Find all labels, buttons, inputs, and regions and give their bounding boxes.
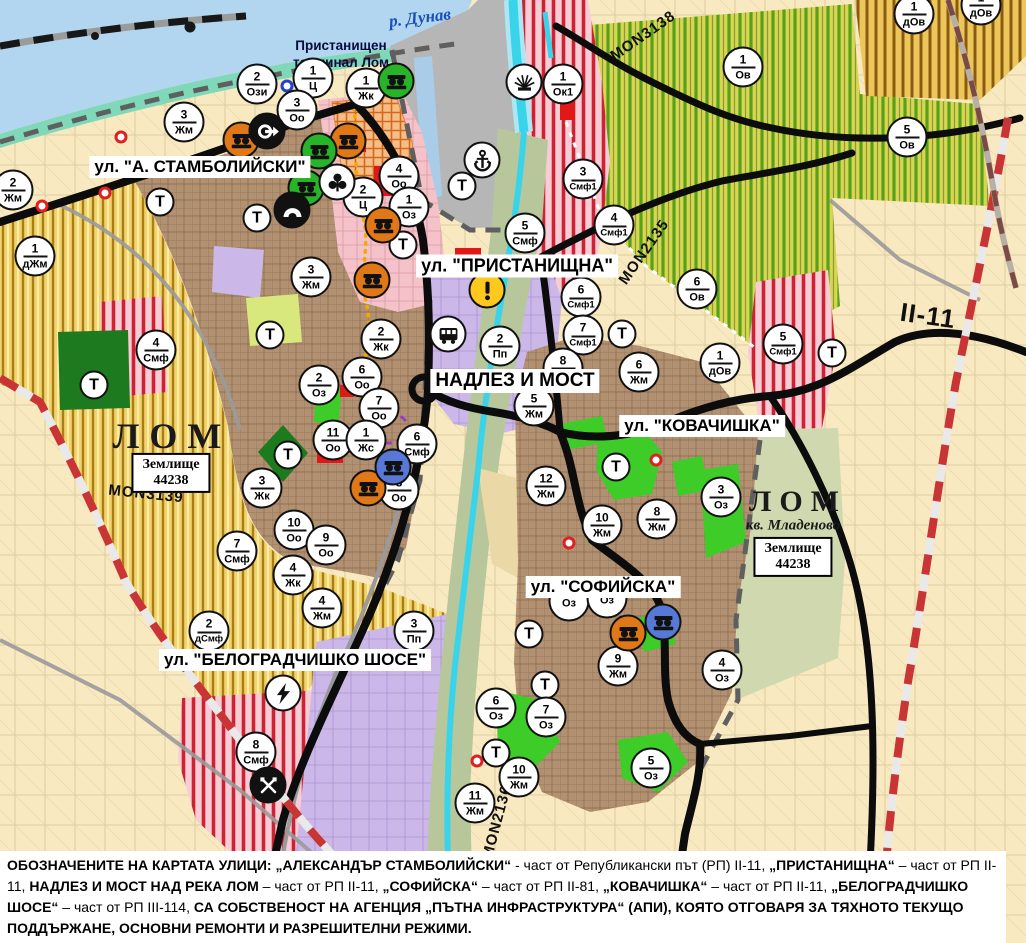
- t-marker: Т: [515, 620, 544, 649]
- zone-marker-number: 3: [580, 166, 587, 178]
- t-marker: Т: [602, 453, 631, 482]
- zone-marker: 3Смф1: [563, 159, 604, 200]
- monument-blue-icon: [645, 604, 682, 641]
- red-ring-dot: [99, 187, 112, 200]
- zone-marker-code: Жм: [313, 611, 331, 622]
- zone-marker: 3Жм: [164, 102, 205, 143]
- zone-marker-code: Жм: [630, 375, 648, 386]
- zone-marker: 10Жм: [582, 505, 623, 546]
- zone-marker-code: Жм: [175, 125, 193, 136]
- zone-marker-code: дСмф: [195, 635, 223, 645]
- zone-marker-number: 7: [234, 537, 241, 549]
- zone-marker-code: Смф1: [567, 301, 594, 311]
- zone-marker-number: 1: [911, 0, 918, 12]
- zone-marker-code: Ов: [899, 140, 914, 151]
- zone-marker-number: 1: [310, 64, 317, 76]
- zone-marker-code: Оз: [714, 500, 728, 511]
- zone-marker-number: 7: [543, 703, 550, 715]
- zone-marker-divider: [405, 444, 429, 446]
- zone-marker-divider: [710, 670, 734, 672]
- zone-marker-code: Оо: [354, 380, 369, 391]
- note-segment: – част от РП II-81,: [478, 878, 603, 894]
- zone-marker-code: Оо: [286, 533, 301, 544]
- zone-marker-divider: [387, 490, 411, 492]
- zone-marker-code: Жм: [4, 193, 22, 204]
- zone-marker: 7Оз: [526, 697, 567, 738]
- zone-marker: 4Смф: [136, 330, 177, 371]
- zone-marker-number: 6: [414, 430, 421, 442]
- zone-marker-divider: [314, 545, 338, 547]
- zone-marker-code: Оо: [318, 548, 333, 559]
- zone-marker-code: Жм: [525, 409, 543, 420]
- zone-marker-number: 1: [363, 426, 370, 438]
- zone-marker: 6Смф1: [561, 277, 602, 318]
- zone-marker-code: Жк: [373, 342, 388, 353]
- zone-marker-number: 8: [253, 738, 260, 750]
- zone-marker-code: Оз: [312, 388, 326, 399]
- zone-marker-code: дОв: [903, 17, 925, 28]
- land-registry-name: Землище: [764, 541, 821, 557]
- zone-marker-code: Смф1: [569, 339, 596, 349]
- zone-marker-number: 1: [560, 70, 567, 82]
- street-label: ул. "СОФИЙСКА": [526, 576, 681, 598]
- zone-marker-divider: [301, 78, 325, 80]
- zone-marker: 5Ов: [887, 117, 928, 158]
- zone-marker-code: Оо: [391, 493, 406, 504]
- zone-marker-number: 10: [287, 516, 300, 528]
- zone-marker-number: 1: [717, 349, 724, 361]
- zone-marker-code: Смф1: [600, 229, 627, 239]
- zone-marker: 1Ок1: [543, 64, 584, 105]
- bus-station-icon: [430, 316, 467, 353]
- zone-marker-number: 3: [259, 474, 266, 486]
- zone-marker-number: 9: [615, 652, 622, 664]
- zone-marker-divider: [172, 122, 196, 124]
- street-label: НАДЛЕЗ И МОСТ: [430, 369, 599, 393]
- trefoil-icon: [319, 164, 356, 201]
- zone-marker-divider: [397, 207, 421, 209]
- zone-marker-divider: [225, 551, 249, 553]
- zone-marker: 1дЖм: [15, 236, 56, 277]
- zone-marker-code: Жк: [285, 578, 300, 589]
- zone-marker-code: Жс: [358, 443, 374, 454]
- zone-marker-divider: [310, 608, 334, 610]
- zone-marker-number: 7: [376, 394, 383, 406]
- zone-marker-number: 2: [360, 183, 367, 195]
- zone-marker-number: 6: [359, 363, 366, 375]
- zone-marker: 10Жм: [499, 757, 540, 798]
- street-label: ул. "БЕЛОГРАДЧИШКО ШОСЕ": [159, 649, 431, 671]
- zone-marker: 2Пп: [480, 326, 521, 367]
- zone-marker-code: Жм: [609, 669, 627, 680]
- zone-marker-number: 12: [539, 472, 552, 484]
- zone-marker-number: 6: [578, 284, 585, 296]
- zone-marker-divider: [627, 372, 651, 374]
- zone-marker-code: Смф1: [569, 183, 596, 193]
- zone-marker: 2дСмф: [189, 611, 230, 652]
- zone-marker: 5Смф1: [763, 324, 804, 365]
- zone-marker-number: 10: [512, 763, 525, 775]
- zone-marker: 6Ов: [677, 269, 718, 310]
- zone-marker-number: 9: [323, 531, 330, 543]
- zone-marker-divider: [281, 575, 305, 577]
- t-marker: Т: [818, 339, 847, 368]
- t-marker: Т: [146, 188, 175, 217]
- zone-marker-code: Оз: [489, 711, 503, 722]
- power-lightning-icon: [265, 675, 302, 712]
- zone-marker-code: Жм: [593, 528, 611, 539]
- zone-marker-divider: [244, 752, 268, 754]
- zone-marker-divider: [534, 486, 558, 488]
- zone-marker-code: Жк: [254, 491, 269, 502]
- zone-marker: 2Ози: [237, 64, 278, 105]
- zone-marker: 7Смф: [217, 531, 258, 572]
- city-name-label: ЛОМ: [113, 415, 232, 457]
- zone-marker-divider: [144, 350, 168, 352]
- zone-marker-divider: [387, 176, 411, 178]
- zone-marker-code: Жм: [302, 280, 320, 291]
- zone-marker-divider: [285, 110, 309, 112]
- zone-marker-divider: [685, 289, 709, 291]
- zone-marker-code: Оз: [644, 771, 658, 782]
- zone-marker-number: 3: [181, 108, 188, 120]
- zone-marker-code: Пп: [407, 634, 422, 645]
- zone-marker-code: Оо: [325, 443, 340, 454]
- gate-arrow-icon: [249, 113, 286, 150]
- zone-marker: 12Жм: [526, 466, 567, 507]
- zone-marker: 2Жк: [361, 319, 402, 360]
- t-marker: Т: [274, 441, 303, 470]
- t-marker: Т: [531, 671, 560, 700]
- red-ring-dot: [563, 537, 576, 550]
- zone-marker-number: 1: [363, 74, 370, 86]
- zone-marker-number: 3: [411, 617, 418, 629]
- street-label: ул. "А. СТАМБОЛИЙСКИ": [89, 156, 310, 178]
- monument-green-icon: [378, 63, 415, 100]
- zone-marker-number: 5: [648, 754, 655, 766]
- zone-marker-number: 8: [560, 354, 567, 366]
- t-marker: Т: [243, 204, 272, 233]
- land-registry-box: Землище44238: [753, 537, 832, 577]
- zone-marker: 8Жм: [637, 499, 678, 540]
- red-ring-dot: [650, 454, 663, 467]
- zone-marker-code: Оз: [562, 598, 576, 609]
- zone-marker-divider: [321, 440, 345, 442]
- zone-marker: 4Жм: [302, 588, 343, 629]
- zone-marker-divider: [299, 277, 323, 279]
- zone-marker-number: 8: [654, 505, 661, 517]
- zone-marker-number: 3: [718, 483, 725, 495]
- zone-marker-number: 4: [290, 561, 297, 573]
- zone-marker-code: Жм: [648, 522, 666, 533]
- zoning-map-canvas[interactable]: р. Дунав Пристанищен терминал Лом кв. Мл…: [0, 0, 1026, 943]
- zone-marker-number: 4: [396, 162, 403, 174]
- zone-marker: 1дОв: [700, 343, 741, 384]
- zone-marker-code: Оз: [539, 720, 553, 731]
- zone-marker-code: Ок1: [553, 87, 573, 98]
- zone-marker: 4Смф1: [594, 205, 635, 246]
- zone-marker-number: 5: [522, 219, 529, 231]
- note-segment: – част от РП II-11,: [707, 878, 831, 894]
- crane-fan-icon: [506, 64, 543, 101]
- zone-marker-code: дЖм: [22, 259, 47, 270]
- zone-marker: 5Смф: [505, 213, 546, 254]
- zone-marker-number: 4: [319, 594, 326, 606]
- zone-marker-code: дОв: [970, 8, 992, 19]
- zone-marker: 4Жк: [273, 555, 314, 596]
- zone-marker-divider: [522, 406, 546, 408]
- red-ring-dot: [115, 131, 128, 144]
- zone-marker-divider: [351, 197, 375, 199]
- zone-marker-code: Оз: [402, 210, 416, 221]
- zone-marker: 1Ов: [723, 47, 764, 88]
- red-ring-dot: [36, 200, 49, 213]
- note-segment: „СОФИЙСКА“: [383, 878, 479, 894]
- zone-marker-code: Ов: [735, 70, 750, 81]
- zone-marker: 3Пп: [394, 611, 435, 652]
- zone-marker-code: Жм: [510, 780, 528, 791]
- zone-marker: 3Жк: [242, 468, 283, 509]
- zone-marker: 6Оз: [476, 688, 517, 729]
- zone-marker-number: 4: [153, 336, 160, 348]
- zone-marker-number: 2: [206, 618, 213, 630]
- street-label: ул. "ПРИСТАНИЩНА": [416, 255, 618, 278]
- zone-marker-divider: [367, 408, 391, 410]
- zone-marker-number: 6: [493, 694, 500, 706]
- zone-marker-divider: [709, 497, 733, 499]
- zone-marker-divider: [1, 190, 25, 192]
- zone-marker-divider: [513, 233, 537, 235]
- zone-marker-divider: [488, 346, 512, 348]
- zone-marker-number: 1: [406, 193, 413, 205]
- zone-marker: 5Оз: [631, 748, 672, 789]
- zone-marker-divider: [282, 530, 306, 532]
- land-registry-box: Землище44238: [131, 453, 210, 493]
- zone-marker: 11Жм: [455, 783, 496, 824]
- land-registry-name: Землище: [142, 457, 199, 473]
- land-registry-number: 44238: [142, 473, 199, 489]
- zone-marker-code: Оо: [289, 113, 304, 124]
- zone-marker-number: 3: [294, 96, 301, 108]
- zone-marker-number: 2: [497, 332, 504, 344]
- note-segment: НАДЛЕЗ И МОСТ НАД РЕКА ЛОМ: [29, 878, 258, 894]
- zone-marker-code: Ц: [359, 200, 367, 211]
- zone-marker: 6Жм: [619, 352, 660, 393]
- zone-marker-code: Смф: [143, 353, 169, 364]
- zone-marker-divider: [463, 803, 487, 805]
- zone-marker-code: дОв: [709, 366, 731, 377]
- land-registry-number: 44238: [764, 557, 821, 573]
- zone-marker-divider: [350, 377, 374, 379]
- zone-marker-number: 4: [719, 656, 726, 668]
- zone-marker-number: 2: [378, 325, 385, 337]
- zone-marker-divider: [507, 777, 531, 779]
- zone-marker-divider: [250, 488, 274, 490]
- monument-blue-icon: [375, 449, 412, 486]
- note-segment: – част от РП II-11,: [259, 878, 383, 894]
- t-marker: Т: [80, 371, 109, 400]
- zone-marker-code: Смф: [512, 236, 538, 247]
- map-legend-note: ОБОЗНАЧЕНИТЕ НА КАРТАТА УЛИЦИ: „АЛЕКСАНД…: [0, 851, 1006, 943]
- zone-marker-divider: [708, 363, 732, 365]
- zone-marker-divider: [354, 88, 378, 90]
- zone-marker-number: 11: [469, 789, 482, 801]
- zone-marker-number: 4: [611, 212, 618, 224]
- note-segment: – част от РП III-114,: [58, 899, 193, 915]
- monument-orange-icon: [610, 615, 647, 652]
- zone-marker-number: 3: [308, 263, 315, 275]
- zone-marker-code: Ц: [309, 81, 317, 92]
- city-name-label: ЛОМ: [749, 485, 847, 519]
- zone-marker-code: Смф1: [769, 348, 796, 358]
- zone-marker-number: 7: [580, 322, 587, 334]
- note-segment: ОБОЗНАЧЕНИТЕ НА КАРТАТА УЛИЦИ: „АЛЕКСАНД…: [7, 857, 511, 873]
- zone-marker-number: 2: [10, 176, 17, 188]
- zone-marker: 3Оз: [701, 477, 742, 518]
- zone-marker-divider: [902, 14, 926, 16]
- note-segment: „КОВАЧИШКА“: [603, 878, 708, 894]
- zone-marker-code: Жм: [466, 806, 484, 817]
- zone-marker-code: Ози: [247, 87, 268, 98]
- zone-marker-number: 2: [254, 70, 261, 82]
- zone-marker-divider: [639, 768, 663, 770]
- zone-marker-divider: [354, 440, 378, 442]
- quarter-mladenovo-label: кв. Младеново: [746, 518, 840, 535]
- zone-marker-number: 5: [531, 392, 538, 404]
- zone-marker-divider: [402, 631, 426, 633]
- street-label: ул. "КОВАЧИШКА": [619, 415, 785, 437]
- zone-marker-number: 10: [595, 511, 608, 523]
- industrial-cross-icon: [250, 767, 287, 804]
- zone-marker-divider: [969, 5, 993, 7]
- zone-marker-divider: [369, 339, 393, 341]
- zone-marker-number: 5: [780, 331, 787, 343]
- zone-marker-divider: [23, 256, 47, 258]
- zone-marker-divider: [645, 519, 669, 521]
- zone-marker: 2Оз: [299, 365, 340, 406]
- zone-marker: 9Жм: [598, 646, 639, 687]
- t-marker: Т: [608, 320, 637, 349]
- zone-marker-code: Пп: [493, 349, 508, 360]
- zone-marker-divider: [895, 137, 919, 139]
- zone-marker-divider: [307, 385, 331, 387]
- zone-marker-code: Ов: [689, 292, 704, 303]
- zone-marker: 4Оз: [702, 650, 743, 691]
- zone-marker-number: 5: [904, 123, 911, 135]
- zone-marker: 9Оо: [306, 525, 347, 566]
- note-segment: - част от Републикански път (РП) II-11,: [511, 857, 769, 873]
- zone-marker: 3Жм: [291, 257, 332, 298]
- zone-marker-number: 1: [978, 0, 985, 3]
- zone-marker-divider: [245, 84, 269, 86]
- zone-marker-number: 1: [32, 242, 39, 254]
- note-segment: „ПРИСТАНИЩНА“: [769, 857, 895, 873]
- zone-marker-code: Жм: [537, 489, 555, 500]
- zone-marker-code: Жк: [358, 91, 373, 102]
- monument-orange-icon: [354, 262, 391, 299]
- zone-marker-divider: [484, 708, 508, 710]
- zone-marker-divider: [606, 666, 630, 668]
- zone-marker-number: 1: [740, 53, 747, 65]
- cave-icon: [274, 192, 311, 229]
- zone-marker-number: 6: [694, 275, 701, 287]
- zone-marker-code: Смф: [224, 554, 250, 565]
- monument-orange-icon: [365, 207, 402, 244]
- zone-marker-divider: [731, 67, 755, 69]
- zone-marker-divider: [551, 84, 575, 86]
- t-marker: Т: [256, 321, 285, 350]
- zone-marker-number: 11: [327, 426, 340, 438]
- zone-marker-divider: [534, 717, 558, 719]
- zone-marker-code: Оз: [715, 673, 729, 684]
- zone-marker-divider: [590, 525, 614, 527]
- zone-marker-code: Смф: [243, 755, 269, 766]
- port-terminal-line1: Пристанищен: [293, 38, 389, 55]
- zone-marker-number: 6: [636, 358, 643, 370]
- zone-marker-number: 2: [316, 371, 323, 383]
- anchor-icon: [464, 142, 501, 179]
